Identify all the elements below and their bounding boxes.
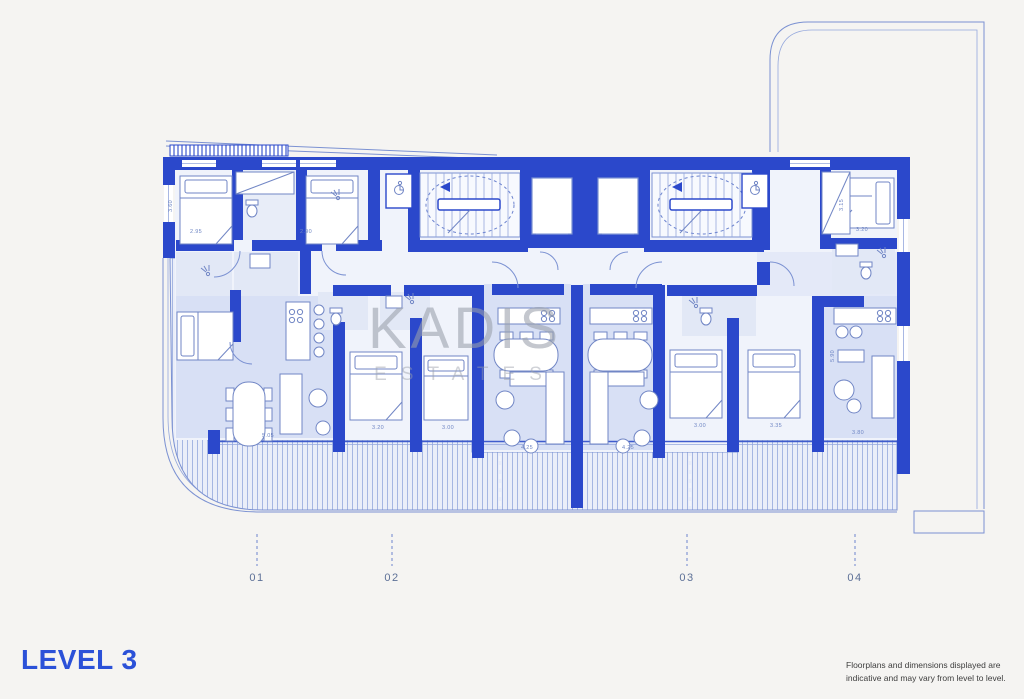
dining-table: [494, 332, 558, 378]
stair-core-left: [420, 173, 520, 237]
toilet: [860, 262, 872, 279]
accessible-wc-left: [386, 174, 412, 208]
dimension-label: 4.25: [622, 445, 634, 451]
grid-marker-label: 02: [384, 572, 399, 584]
kitchen-island: [590, 308, 652, 324]
washbasin: [250, 254, 270, 268]
bed: [748, 350, 800, 418]
bed: [306, 176, 358, 244]
dimension-label: 3.20: [856, 227, 868, 233]
level-title: LEVEL 3: [21, 644, 138, 676]
disclaimer: Floorplans and dimensions displayed are …: [846, 659, 1006, 685]
dimension-label: 3.60: [168, 200, 174, 212]
toilet: [246, 200, 258, 217]
washbasin: [386, 296, 402, 308]
kitchen-island: [498, 308, 560, 324]
dimension-label: 3.80: [852, 430, 864, 436]
disclaimer-line-2: indicative and may vary from level to le…: [846, 672, 1006, 685]
dimension-label: 3.35: [770, 423, 782, 429]
floorplan-page: 2.95 2.90 3.20 3.60 3.15 5.05 3.20 3.00 …: [0, 0, 1024, 699]
bed: [180, 176, 232, 244]
bed: [670, 350, 722, 418]
stair-core-right: [652, 173, 752, 237]
dimension-label: 3.15: [839, 199, 845, 211]
grid-marker-label: 04: [847, 572, 862, 584]
bed: [350, 352, 402, 420]
toilet: [330, 308, 342, 325]
dimension-label: 3.20: [372, 425, 384, 431]
grid-marker-label: 01: [249, 572, 264, 584]
toilet: [700, 308, 712, 325]
wardrobe: [236, 172, 294, 194]
elevator-car: [598, 178, 638, 234]
dimension-label: 3.00: [694, 423, 706, 429]
wardrobe: [822, 172, 850, 234]
elevator-shafts: [520, 168, 650, 248]
kitchen-island: [834, 308, 896, 324]
dimension-label: 3.00: [442, 425, 454, 431]
elevator-car: [532, 178, 572, 234]
dimension-label: 5.90: [830, 350, 836, 362]
grid-markers: 01 02 03 04: [249, 534, 862, 584]
dimension-label: 2.95: [190, 229, 202, 235]
washbasin: [836, 244, 858, 256]
dimension-label: 4.25: [521, 445, 533, 451]
accessible-wc-right: [742, 174, 768, 208]
bed: [424, 356, 468, 420]
grid-marker-label: 03: [679, 572, 694, 584]
dimension-label: 2.90: [300, 229, 312, 235]
floor-plan: 2.95 2.90 3.20 3.60 3.15 5.05 3.20 3.00 …: [0, 0, 1024, 699]
dimension-label: 5.05: [262, 433, 274, 439]
bed: [177, 312, 233, 360]
dining-table: [588, 332, 652, 378]
disclaimer-line-1: Floorplans and dimensions displayed are: [846, 659, 1006, 672]
